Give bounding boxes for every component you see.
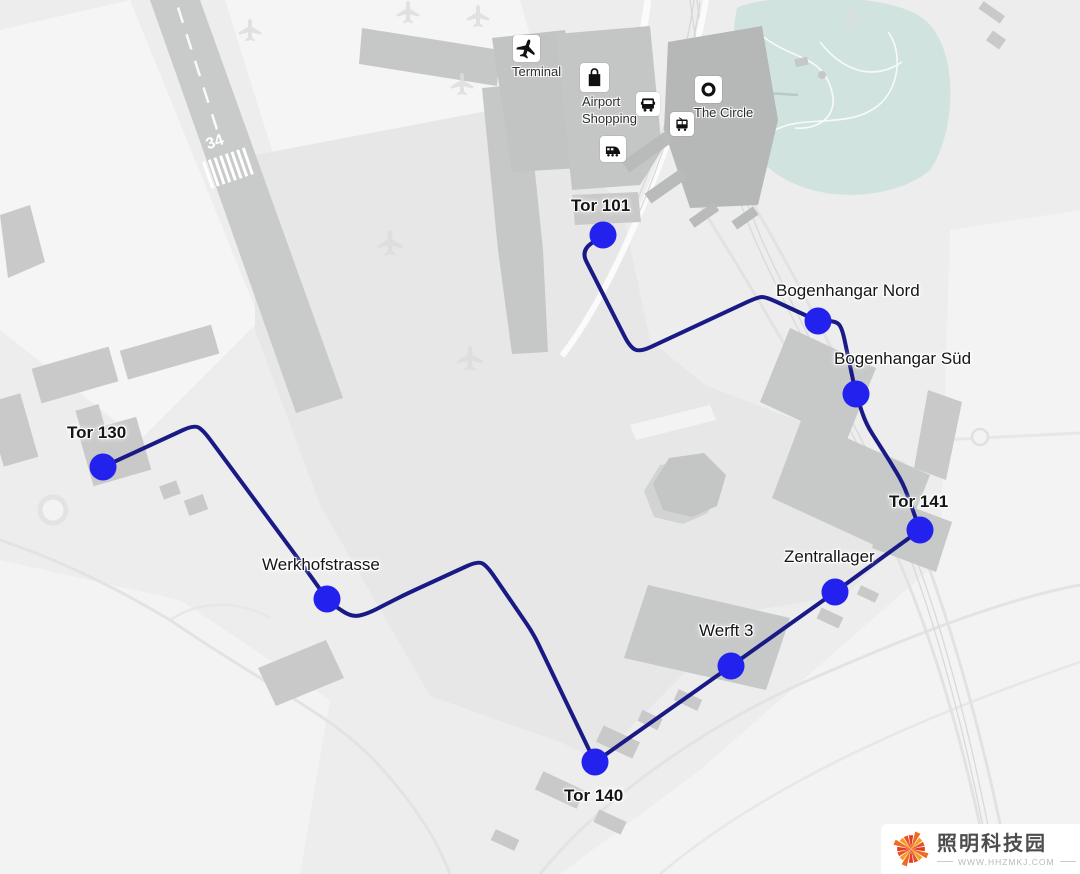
watermark: 照明科技园 WWW.HHZMKJ.COM: [881, 824, 1080, 874]
stop-marker-tor-101[interactable]: [590, 222, 617, 249]
stop-marker-werkhofstrasse[interactable]: [314, 586, 341, 613]
stop-marker-tor-140[interactable]: [582, 749, 609, 776]
stop-marker-bogenhangar-nord[interactable]: [805, 308, 832, 335]
sunburst-logo-icon: [891, 829, 931, 869]
stop-marker-tor-130[interactable]: [90, 454, 117, 481]
stop-marker-werft-3[interactable]: [718, 653, 745, 680]
stop-marker-zentrallager[interactable]: [822, 579, 849, 606]
watermark-url: WWW.HHZMKJ.COM: [937, 857, 1076, 867]
watermark-title: 照明科技园: [937, 832, 1076, 856]
stop-marker-bogenhangar-sued[interactable]: [843, 381, 870, 408]
airport-map[interactable]: 34: [0, 0, 1080, 874]
map-canvas[interactable]: 34: [0, 0, 1080, 874]
stop-marker-tor-141[interactable]: [907, 517, 934, 544]
